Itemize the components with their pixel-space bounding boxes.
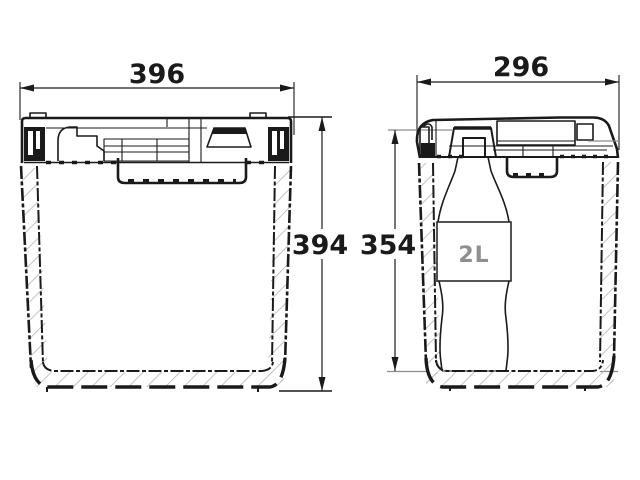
front-body-section	[21, 166, 291, 392]
cooler-box-technical-drawing: 396	[0, 0, 640, 480]
inner-height-label: 354	[360, 230, 416, 261]
side-bottom-hatch	[426, 372, 614, 387]
front-left-latch	[24, 127, 45, 161]
front-left-wall-hatch	[21, 168, 48, 386]
technical-drawing-page: 396	[0, 0, 640, 480]
dim-arrow-up	[392, 130, 399, 144]
dim-arrow-down	[392, 357, 399, 371]
bottle-neck	[455, 157, 491, 171]
dim-arrow-left	[20, 85, 34, 92]
bottle-neck-pocket	[449, 128, 496, 157]
front-right-latch	[268, 127, 289, 161]
bottle-capacity-label: 2L	[458, 243, 489, 268]
side-width-label: 296	[493, 52, 549, 83]
front-width-dimension: 396	[20, 59, 294, 135]
bottle-shoulder	[438, 171, 509, 222]
side-width-dimension: 296	[417, 52, 619, 150]
front-width-label: 396	[129, 59, 185, 90]
front-lid-section	[22, 113, 291, 183]
side-section-view: 296 354	[360, 52, 619, 391]
dim-arrow-up	[319, 117, 326, 131]
dim-arrow-right	[280, 85, 294, 92]
front-hinge-lever	[58, 127, 104, 161]
side-inner-floor	[436, 360, 603, 371]
dim-arrow-right	[605, 79, 619, 86]
bottle-2l: 2L	[437, 157, 511, 371]
dim-arrow-left	[417, 79, 431, 86]
front-bottom-hatch	[32, 372, 284, 387]
front-height-label: 394	[292, 230, 348, 261]
dim-arrow-down	[319, 377, 326, 391]
bottle-body	[439, 281, 509, 371]
side-lid-section	[417, 118, 619, 178]
front-section-view: 396	[20, 59, 348, 392]
front-inner-floor	[43, 362, 273, 371]
